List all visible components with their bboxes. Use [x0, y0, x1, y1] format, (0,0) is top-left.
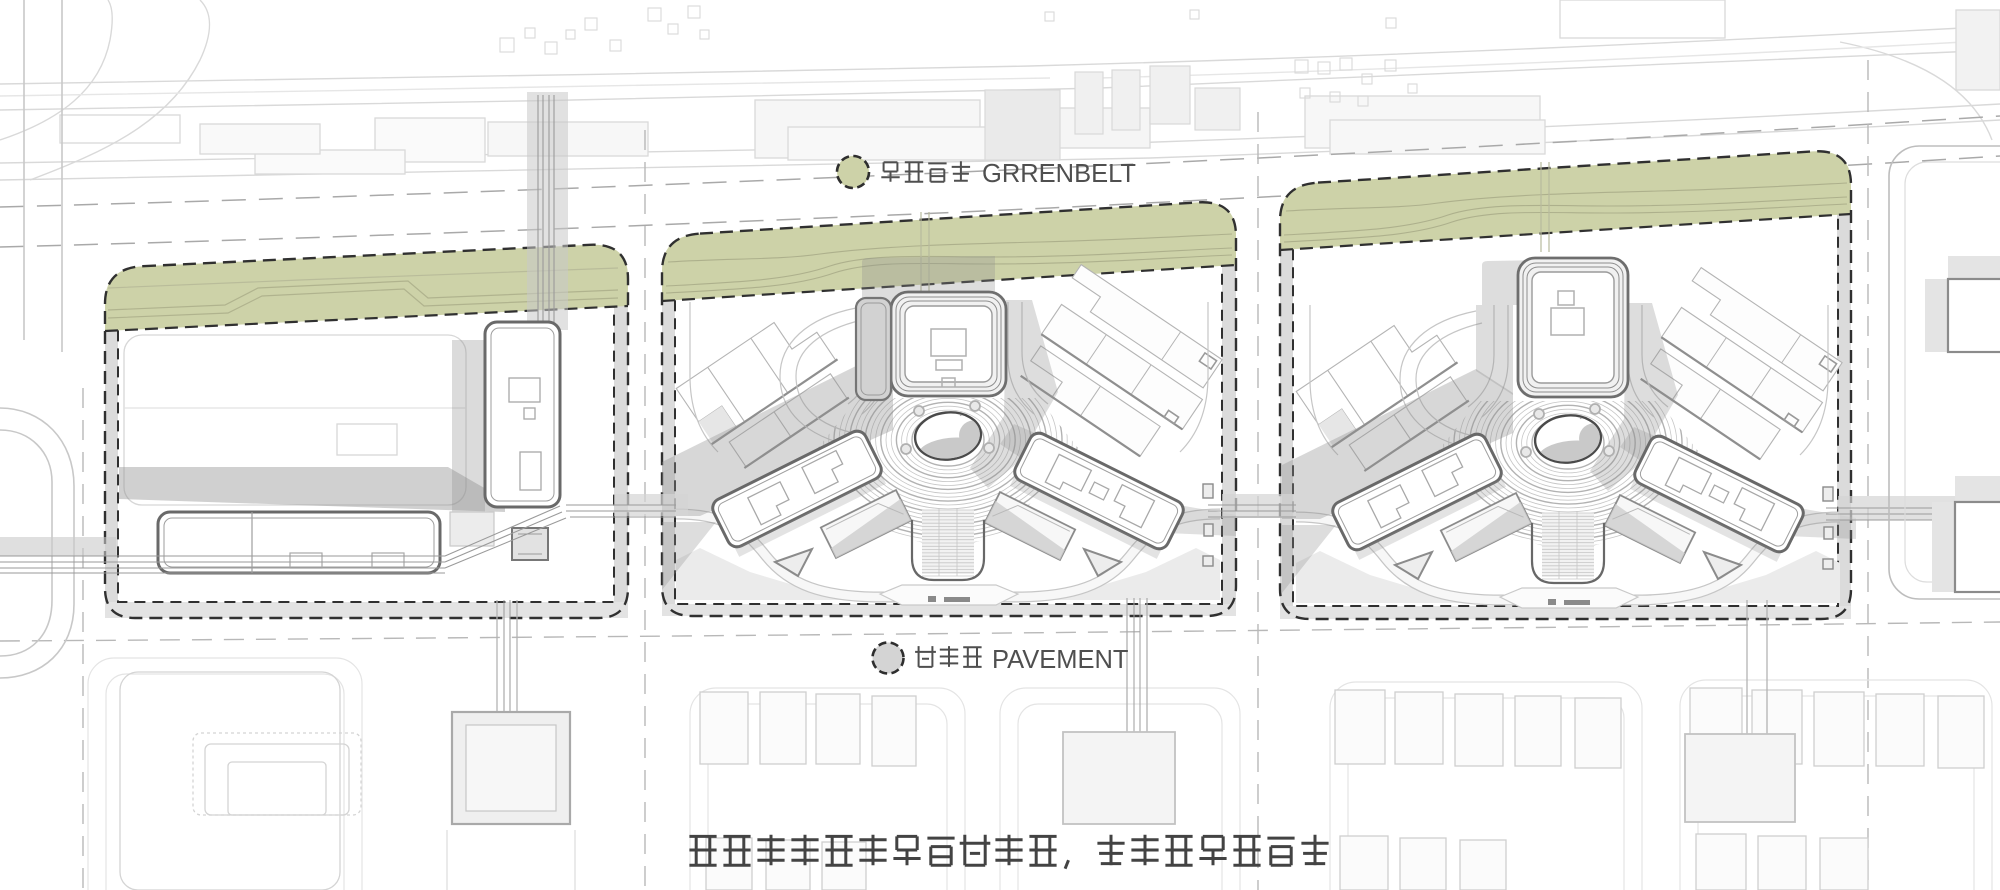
svg-text:PAVEMENT: PAVEMENT	[992, 646, 1129, 674]
svg-text:GRRENBELT: GRRENBELT	[982, 160, 1136, 188]
